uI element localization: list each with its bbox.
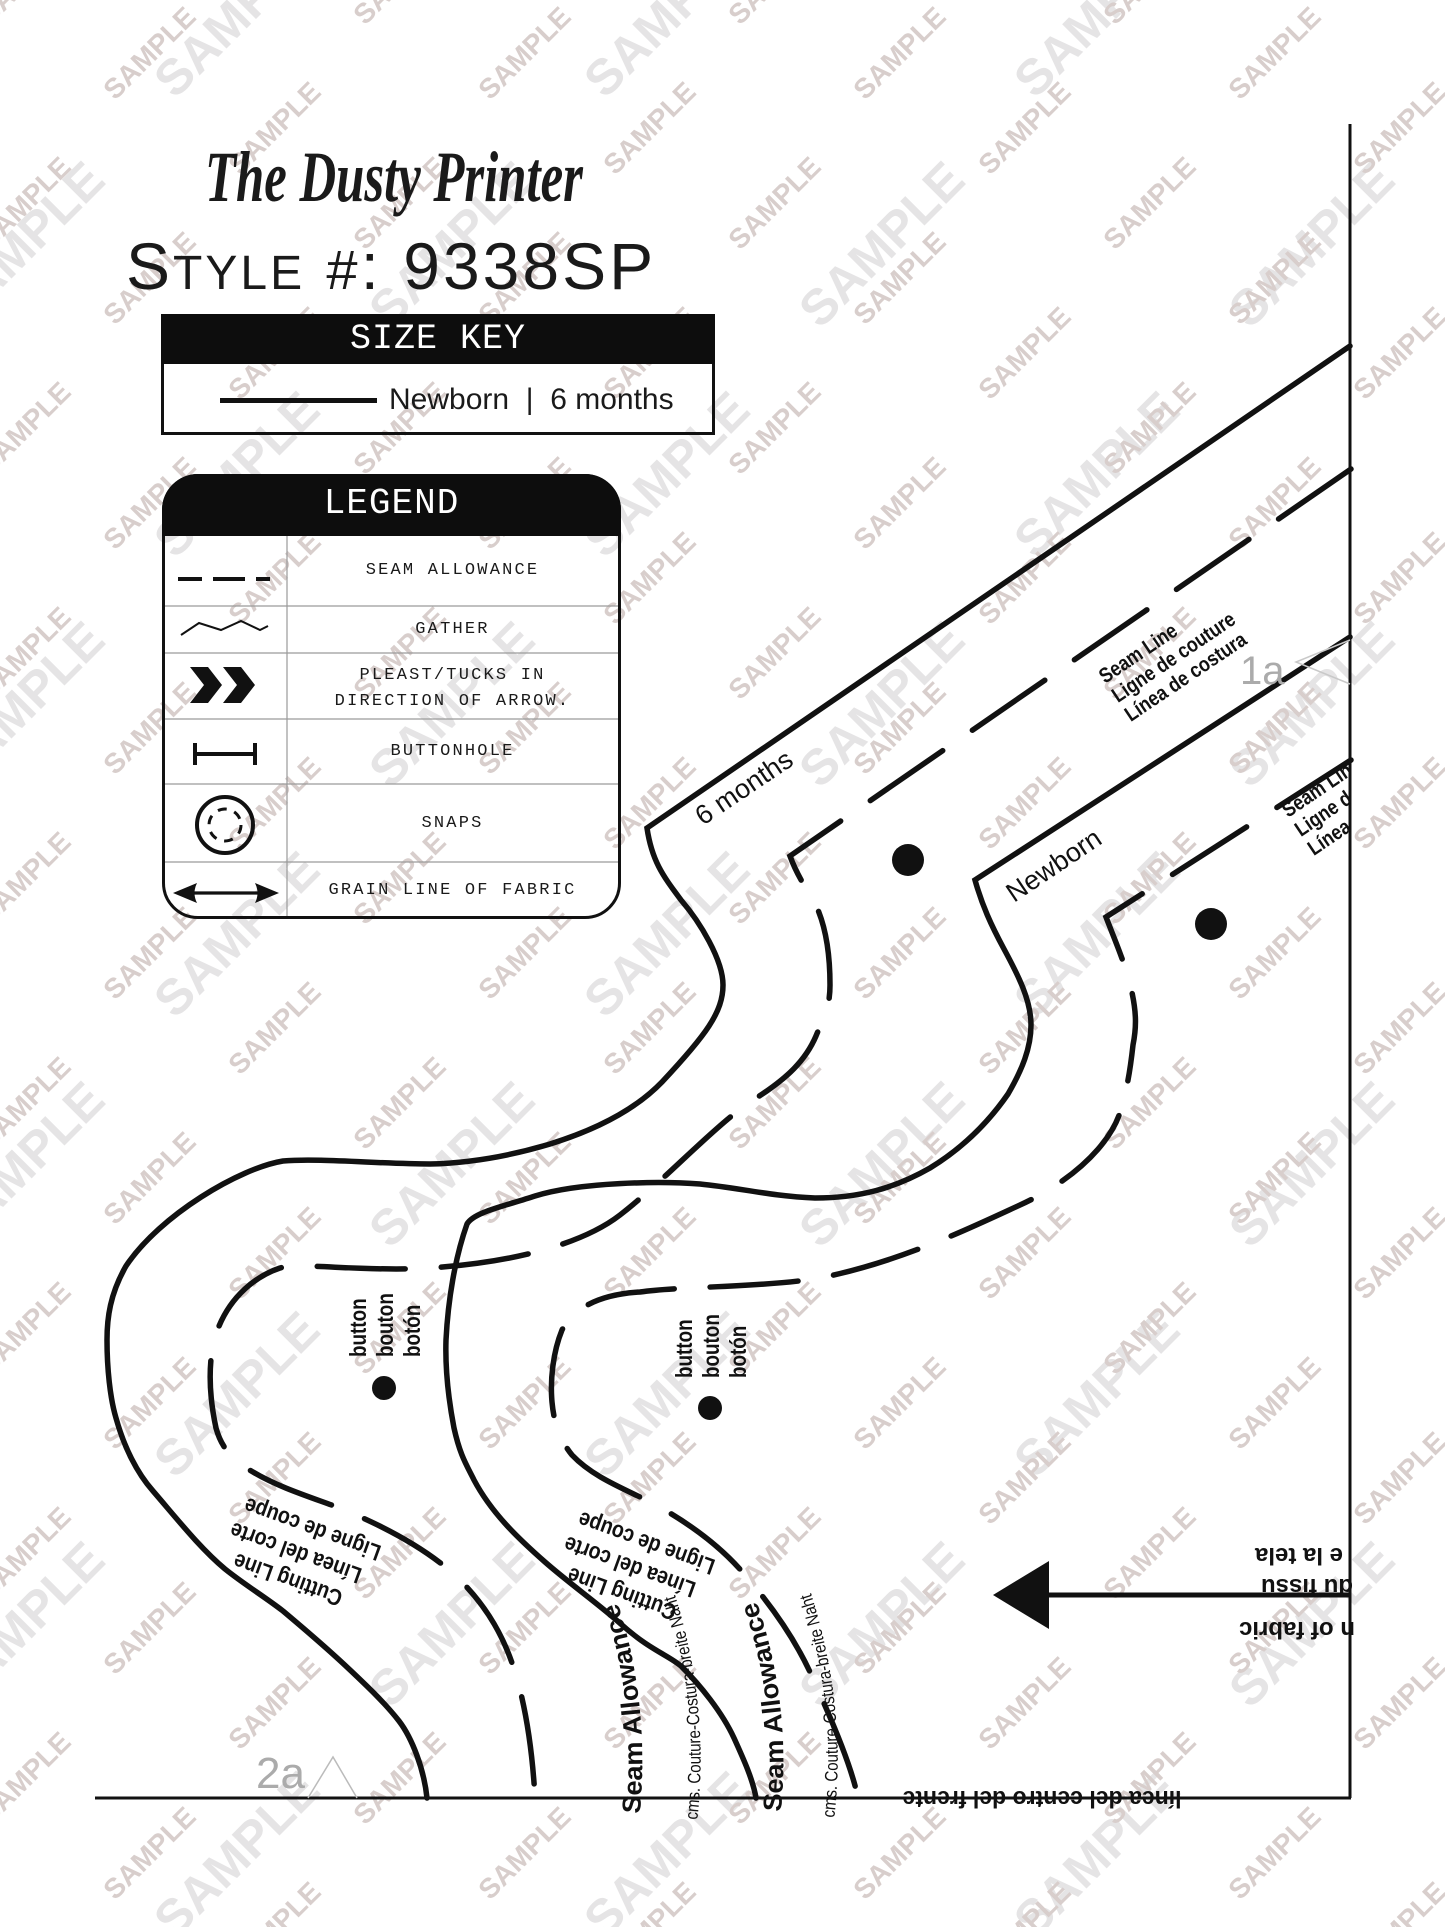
- svg-text:e la tela: e la tela: [1254, 1542, 1343, 1569]
- svg-text:2a: 2a: [256, 1749, 305, 1798]
- svg-text:button: button: [672, 1319, 697, 1378]
- svg-text:Seam Allowance: Seam Allowance: [734, 1599, 790, 1812]
- svg-text:botón: botón: [726, 1326, 751, 1378]
- svg-text:1a: 1a: [1240, 649, 1285, 693]
- svg-text:botón: botón: [400, 1305, 425, 1357]
- svg-text:línea del centro del frente: línea del centro del frente: [902, 1786, 1181, 1813]
- svg-text:cms. Couture-Costura-breite Na: cms. Couture-Costura-breite Naht: [660, 1594, 705, 1821]
- svg-text:Seam Allowance: Seam Allowance: [595, 1601, 649, 1815]
- svg-text:du fissu: du fissu: [1261, 1573, 1353, 1600]
- svg-text:Newborn: Newborn: [1001, 823, 1107, 908]
- svg-text:button: button: [346, 1298, 371, 1357]
- svg-text:cms. Couture-Costura-breite Na: cms. Couture-Costura-breite Naht: [796, 1592, 842, 1819]
- svg-text:n of fabric: n of fabric: [1239, 1616, 1355, 1643]
- svg-text:bouton: bouton: [699, 1314, 724, 1378]
- svg-text:bouton: bouton: [373, 1293, 398, 1357]
